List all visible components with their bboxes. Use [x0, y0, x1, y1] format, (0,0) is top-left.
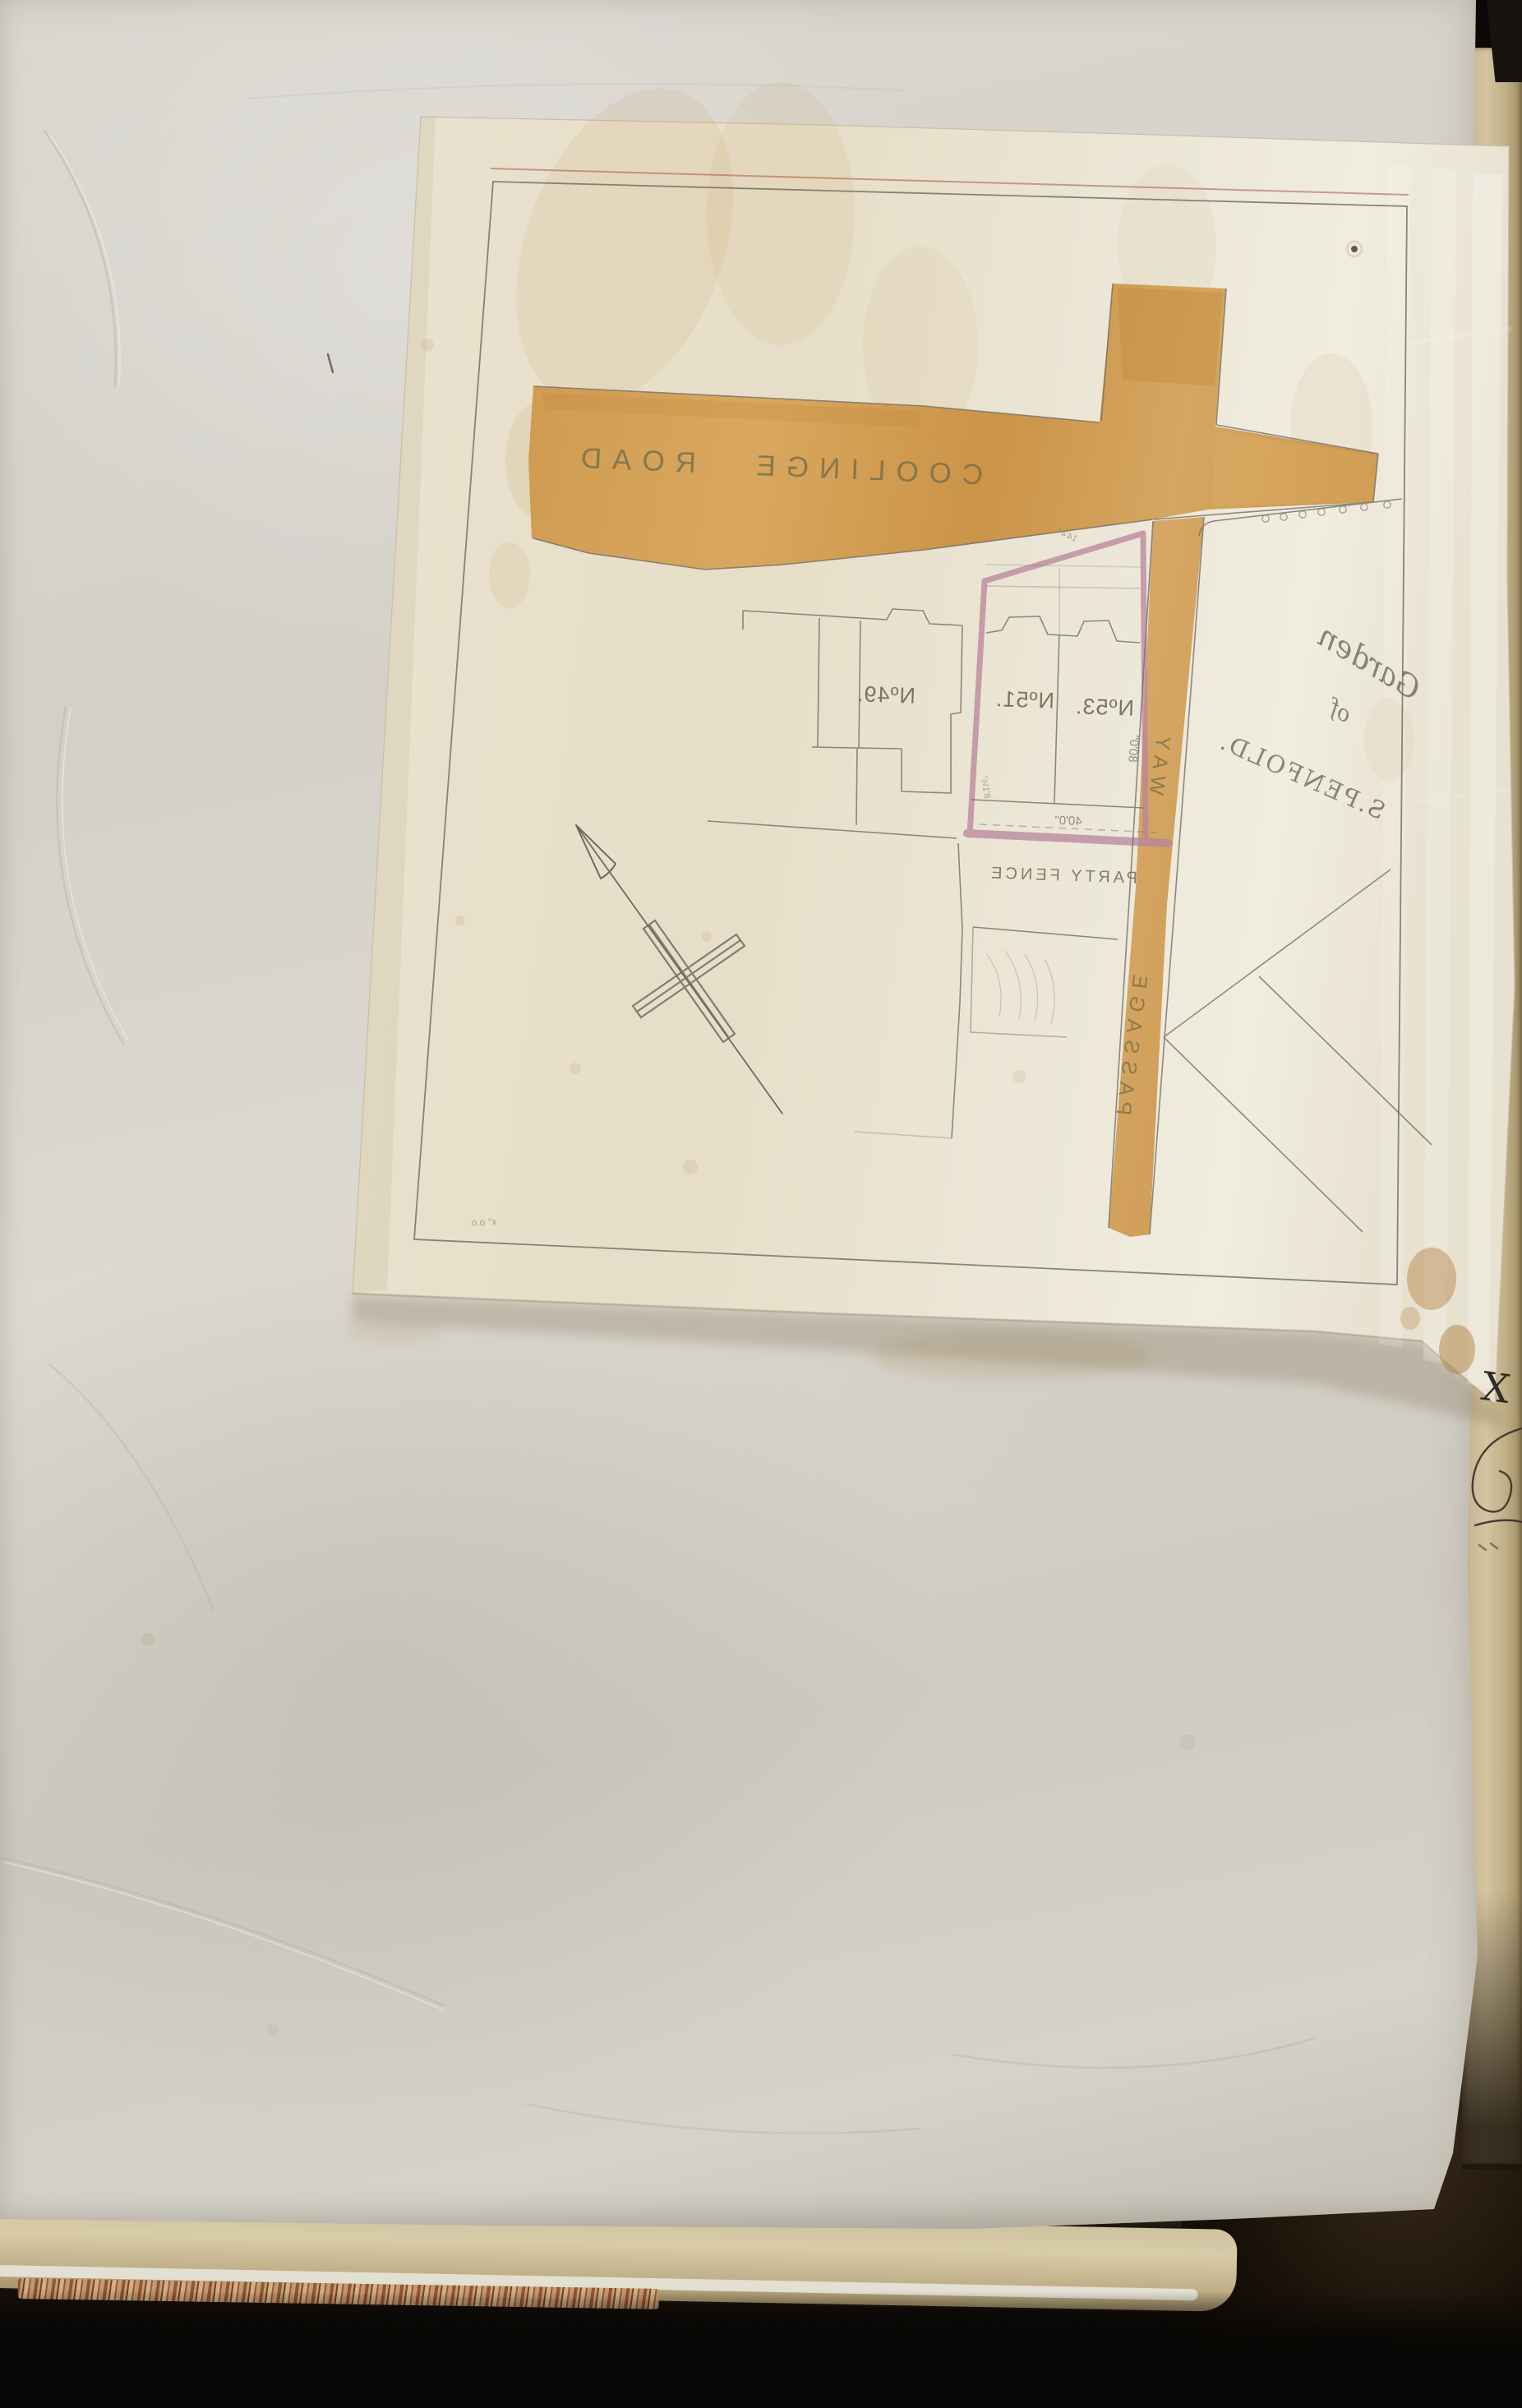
gutter-shadow [0, 2291, 1522, 2408]
book-page [0, 0, 1484, 2229]
scanned-book-photo: COOLINGE ROAD Nº49. Nº51. Nº53. 80'0" 40… [0, 0, 1522, 2408]
